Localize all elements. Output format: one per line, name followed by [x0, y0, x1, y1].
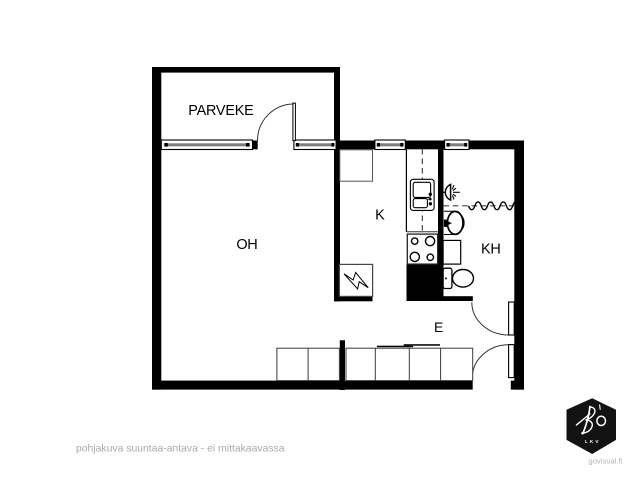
svg-text:E: E: [434, 319, 443, 335]
svg-text:KH: KH: [481, 241, 501, 257]
svg-text:govisual.fi: govisual.fi: [588, 457, 622, 466]
svg-text:pohjakuva suuntaa-antava - ei: pohjakuva suuntaa-antava - ei mittakaava…: [76, 444, 285, 455]
svg-text:PARVEKE: PARVEKE: [188, 103, 253, 119]
svg-text:LKV: LKV: [585, 439, 601, 444]
svg-text:K: K: [375, 207, 385, 223]
svg-text:OH: OH: [236, 237, 257, 253]
